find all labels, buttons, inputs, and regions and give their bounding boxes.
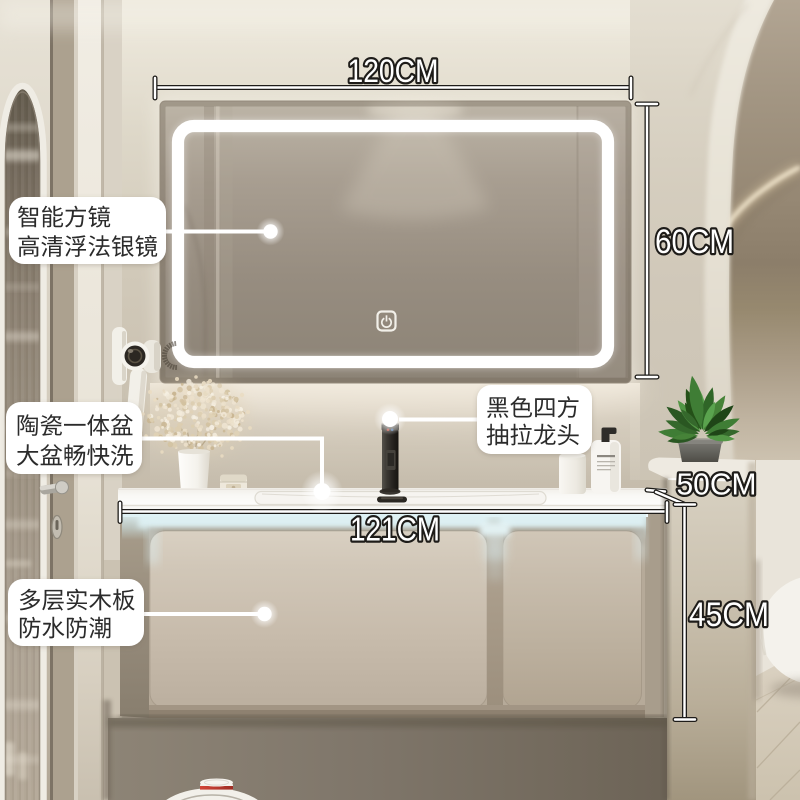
svg-text:60CM: 60CM [655, 223, 734, 261]
svg-text:120CM: 120CM [348, 53, 439, 89]
svg-text:45CM: 45CM [689, 596, 769, 634]
svg-text:121CM: 121CM [350, 512, 440, 549]
svg-text:50CM: 50CM [677, 467, 757, 502]
